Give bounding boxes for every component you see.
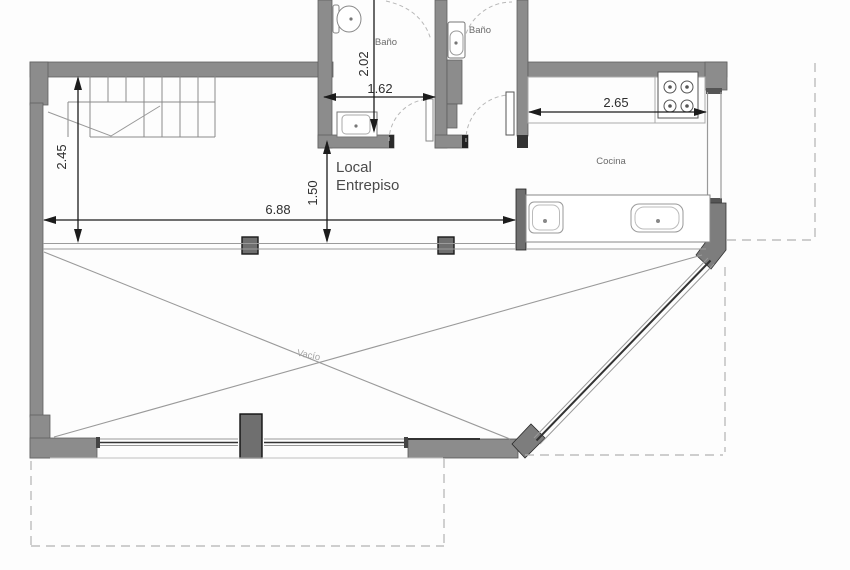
windows: [96, 92, 721, 448]
stair-treads-lower: [144, 102, 198, 137]
window-east: [708, 92, 722, 199]
wall-bath2-bottom-cap: [462, 135, 468, 148]
label-void: Vacío: [296, 348, 321, 364]
wall-bath-divider-pilaster: [447, 60, 462, 104]
wall-kitchen-ne-corner: [705, 62, 727, 90]
window-cap-top: [706, 88, 722, 94]
wall-counter-stub: [516, 189, 526, 250]
label-kitchen: Cocina: [596, 156, 626, 167]
dim-text-kitchen-width: 2.65: [603, 95, 628, 110]
label-bath2: Baño: [469, 25, 491, 36]
wall-left-upper: [30, 62, 48, 105]
dim-text-mezzanine-edge-depth: 1.50: [305, 180, 320, 205]
kitchen-counter-bottom: [526, 195, 710, 242]
wall-bath-divider-step: [447, 104, 457, 128]
toilet-icon-bath1: [333, 5, 361, 33]
void-cross-lines: [44, 252, 702, 439]
wall-bath1-bottom-cap: [389, 135, 394, 148]
wall-top: [30, 62, 333, 77]
thin-lines: [43, 244, 706, 459]
dim-text-mezzanine-width: 6.88: [265, 202, 290, 217]
stairs: [48, 73, 215, 137]
dim-text-bath-width: 1.62: [367, 81, 392, 96]
door-leaf-bath1: [426, 99, 433, 141]
window-diagonal: [534, 258, 714, 444]
label-bath1: Baño: [375, 37, 397, 48]
door-leaf-bath2: [506, 92, 514, 135]
door-arc-bath1-top: [386, 1, 431, 40]
label-mezzanine-line2: Entrepiso: [336, 177, 399, 194]
floor-plan-drawing: 2.02 1.62 2.45 1.50 6.88 2.65 Baño Baño …: [0, 0, 850, 570]
wall-bath2-right-cap: [517, 135, 528, 148]
wall-bath-divider: [435, 0, 447, 148]
column-mezzanine-1: [242, 237, 258, 254]
label-mezzanine-line1: Local: [336, 159, 372, 176]
sink-icon-bath1: [337, 112, 377, 137]
column-mezzanine-2: [438, 237, 454, 254]
toilet-icon-bath2: [448, 22, 465, 58]
wall-bottom-mid: [408, 439, 518, 458]
stove-icon: [658, 72, 698, 118]
stair-break-line: [48, 106, 160, 136]
dim-text-stair-hall-depth: 2.45: [54, 144, 69, 169]
dashed-boundaries: [31, 63, 815, 546]
wall-bath1-left: [318, 0, 332, 148]
stair-frame: [68, 73, 215, 137]
door-arc-bath1-bottom: [389, 99, 431, 141]
dimension-mezzanine-edge-depth: [323, 140, 331, 243]
dim-text-bath-depth: 2.02: [356, 51, 371, 76]
dimension-mezzanine-width: [43, 216, 516, 224]
wall-bath2-right: [517, 0, 528, 136]
dimension-stair-hall-depth: [74, 76, 82, 243]
floor-plan: 2.02 1.62 2.45 1.50 6.88 2.65 Baño Baño …: [0, 0, 850, 570]
column-facade: [240, 414, 262, 458]
door-arc-bath2-bottom: [466, 95, 509, 142]
wall-left: [30, 103, 43, 417]
wall-bottom-left-foot: [30, 438, 97, 458]
